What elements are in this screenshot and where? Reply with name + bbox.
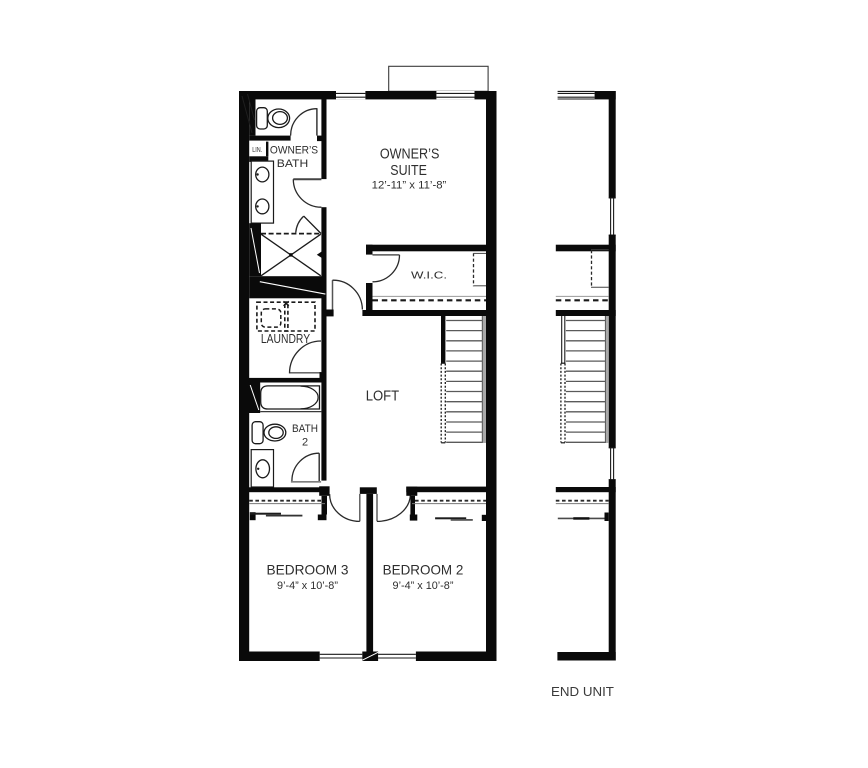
svg-text:OWNER’S: OWNER’S: [380, 146, 440, 162]
svg-text:W.I.C.: W.I.C.: [411, 269, 447, 281]
svg-text:BATH: BATH: [277, 158, 308, 170]
svg-text:LAUNDRY: LAUNDRY: [261, 332, 311, 346]
svg-text:SUITE: SUITE: [390, 163, 427, 179]
svg-text:BEDROOM 3: BEDROOM 3: [267, 563, 349, 578]
svg-text:OWNER’S: OWNER’S: [270, 145, 318, 157]
svg-text:9’-4” x 10’-8”: 9’-4” x 10’-8”: [393, 580, 454, 592]
svg-text:12’-11” x 11’-8”: 12’-11” x 11’-8”: [372, 180, 447, 192]
svg-text:9’-4” x 10’-8”: 9’-4” x 10’-8”: [277, 580, 338, 592]
svg-text:END UNIT: END UNIT: [551, 684, 614, 699]
svg-text:BATH: BATH: [292, 423, 318, 435]
svg-text:LIN.: LIN.: [252, 147, 262, 154]
svg-text:LOFT: LOFT: [366, 389, 400, 405]
svg-text:2: 2: [302, 436, 308, 448]
svg-text:BEDROOM 2: BEDROOM 2: [383, 563, 464, 578]
